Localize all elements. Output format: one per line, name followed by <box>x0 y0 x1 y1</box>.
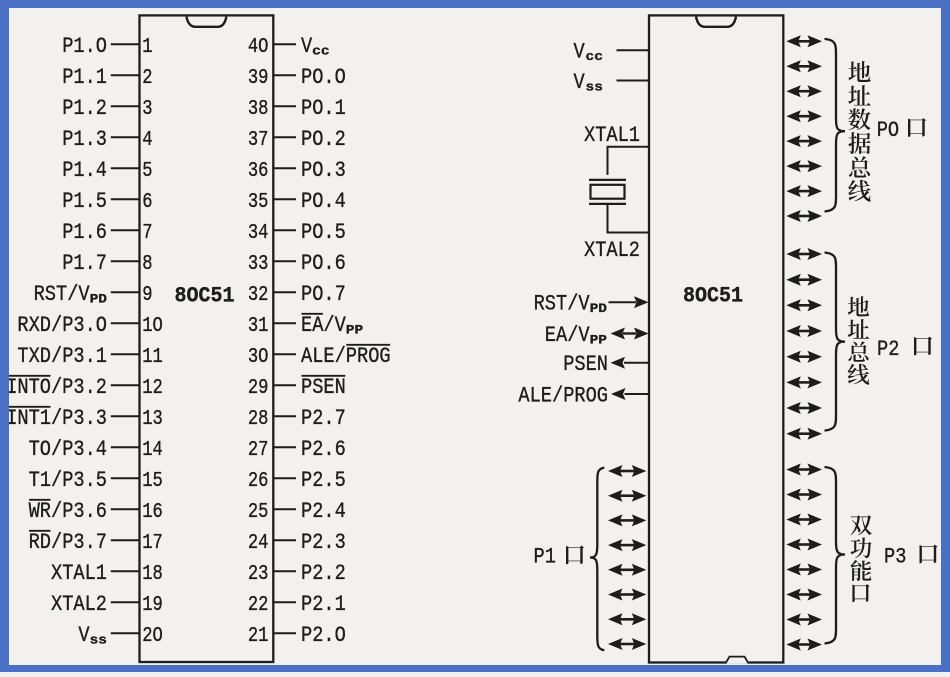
svg-text:1: 1 <box>142 36 152 59</box>
svg-text:P3: P3 <box>884 545 906 570</box>
svg-text:13: 13 <box>142 408 163 431</box>
svg-text:PD: PD <box>90 291 108 306</box>
svg-text:26: 26 <box>248 470 269 493</box>
svg-text:RST/V: RST/V <box>34 282 91 307</box>
svg-text:29: 29 <box>248 377 269 400</box>
svg-text:PO.3: PO.3 <box>301 158 346 183</box>
svg-text:P2.6: P2.6 <box>301 437 346 462</box>
svg-text:8OC51: 8OC51 <box>683 284 743 309</box>
svg-text:PP: PP <box>590 333 608 348</box>
svg-text:19: 19 <box>142 594 163 617</box>
svg-text:PO.1: PO.1 <box>301 96 346 121</box>
svg-text:PO.O: PO.O <box>301 65 346 90</box>
svg-text:31: 31 <box>248 315 269 338</box>
svg-text:P2.5: P2.5 <box>301 468 346 493</box>
svg-text:PO.6: PO.6 <box>301 251 346 276</box>
svg-text:35: 35 <box>248 191 269 214</box>
svg-text:ALE/PROG: ALE/PROG <box>301 344 391 369</box>
svg-text:ss: ss <box>586 80 604 95</box>
svg-text:T1/P3.5: T1/P3.5 <box>29 468 107 493</box>
svg-text:PD: PD <box>590 301 608 316</box>
svg-text:P1.O: P1.O <box>62 34 107 59</box>
svg-text:24: 24 <box>248 532 269 555</box>
svg-text:PSEN: PSEN <box>563 352 608 377</box>
svg-text:P2.3: P2.3 <box>301 530 346 555</box>
svg-text:8OC51: 8OC51 <box>175 284 235 309</box>
svg-text:TO/P3.4: TO/P3.4 <box>29 437 107 462</box>
svg-text:V: V <box>574 40 586 65</box>
svg-text:INTO/P3.2: INTO/P3.2 <box>6 375 107 400</box>
svg-text:1O: 1O <box>142 315 163 338</box>
svg-text:ss: ss <box>90 632 108 647</box>
svg-text:P2: P2 <box>877 337 899 362</box>
svg-text:RXD/P3.O: RXD/P3.O <box>17 313 107 338</box>
svg-text:4: 4 <box>142 129 152 152</box>
svg-text:WR/P3.6: WR/P3.6 <box>29 499 107 524</box>
svg-text:EA/V: EA/V <box>545 323 590 348</box>
svg-text:23: 23 <box>248 563 269 586</box>
svg-text:RD/P3.7: RD/P3.7 <box>29 530 107 555</box>
svg-text:14: 14 <box>142 439 163 462</box>
svg-text:21: 21 <box>248 625 269 648</box>
svg-text:P2.2: P2.2 <box>301 561 346 586</box>
svg-text:2O: 2O <box>142 625 163 648</box>
svg-text:P1.3: P1.3 <box>62 127 107 152</box>
svg-text:TXD/P3.1: TXD/P3.1 <box>17 344 107 369</box>
svg-text:38: 38 <box>248 98 269 121</box>
svg-text:25: 25 <box>248 501 269 524</box>
svg-text:39: 39 <box>248 67 269 90</box>
svg-text:XTAL2: XTAL2 <box>51 592 107 617</box>
svg-text:27: 27 <box>248 439 269 462</box>
svg-text:P1.4: P1.4 <box>62 158 107 183</box>
svg-text:EA/V: EA/V <box>301 313 346 338</box>
svg-text:INT1/P3.3: INT1/P3.3 <box>6 406 107 431</box>
svg-text:ALE/PROG: ALE/PROG <box>518 384 608 409</box>
svg-text:7: 7 <box>142 222 152 245</box>
svg-text:P1: P1 <box>534 545 556 570</box>
svg-text:3O: 3O <box>248 346 269 369</box>
svg-text:cc: cc <box>586 49 604 64</box>
svg-text:RST/V: RST/V <box>534 292 591 317</box>
svg-text:6: 6 <box>142 191 152 214</box>
svg-text:33: 33 <box>248 253 269 276</box>
svg-text:2: 2 <box>142 67 152 90</box>
svg-text:PO: PO <box>877 118 899 143</box>
svg-text:5: 5 <box>142 160 152 183</box>
svg-text:P1.6: P1.6 <box>62 220 107 245</box>
svg-text:P1.2: P1.2 <box>62 96 107 121</box>
svg-text:15: 15 <box>142 470 163 493</box>
svg-text:P2.1: P2.1 <box>301 592 346 617</box>
svg-text:22: 22 <box>248 594 269 617</box>
svg-text:PP: PP <box>346 322 364 337</box>
svg-text:PSEN: PSEN <box>301 375 346 400</box>
svg-text:PO.7: PO.7 <box>301 282 346 307</box>
svg-text:PO.4: PO.4 <box>301 189 346 214</box>
svg-text:36: 36 <box>248 160 269 183</box>
svg-text:XTAL2: XTAL2 <box>584 238 640 263</box>
svg-text:12: 12 <box>142 377 163 400</box>
svg-text:P1.5: P1.5 <box>62 189 107 214</box>
svg-text:V: V <box>78 623 90 648</box>
svg-text:cc: cc <box>312 43 330 58</box>
svg-text:V: V <box>574 70 586 95</box>
svg-text:V: V <box>301 34 313 59</box>
svg-text:3: 3 <box>142 98 152 121</box>
svg-text:18: 18 <box>142 563 163 586</box>
svg-text:XTAL1: XTAL1 <box>584 123 640 148</box>
svg-text:34: 34 <box>248 222 269 245</box>
svg-text:P2.4: P2.4 <box>301 499 346 524</box>
svg-text:8: 8 <box>142 253 152 276</box>
svg-text:16: 16 <box>142 501 163 524</box>
svg-text:P1.1: P1.1 <box>62 65 107 90</box>
svg-text:XTAL1: XTAL1 <box>51 561 107 586</box>
svg-text:11: 11 <box>142 346 163 369</box>
svg-text:P2.7: P2.7 <box>301 406 346 431</box>
svg-text:28: 28 <box>248 408 269 431</box>
svg-text:4O: 4O <box>248 36 269 59</box>
svg-text:P2.O: P2.O <box>301 623 346 648</box>
svg-text:9: 9 <box>142 284 152 307</box>
svg-text:P1.7: P1.7 <box>62 251 107 276</box>
svg-text:37: 37 <box>248 129 269 152</box>
svg-text:32: 32 <box>248 284 269 307</box>
svg-text:PO.2: PO.2 <box>301 127 346 152</box>
svg-text:PO.5: PO.5 <box>301 220 346 245</box>
svg-text:17: 17 <box>142 532 163 555</box>
